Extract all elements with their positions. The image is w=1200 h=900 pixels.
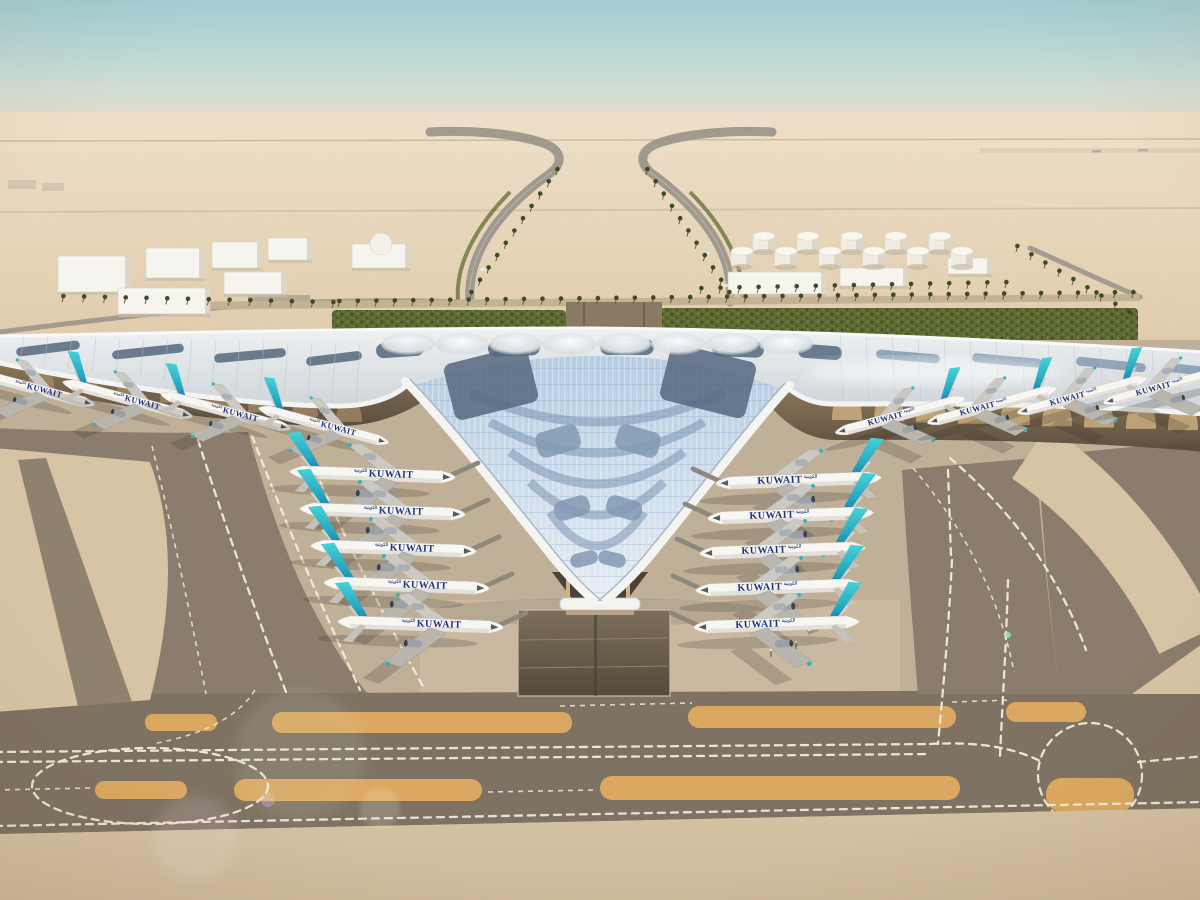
- kuwait-airport-terminal-rendering: KUWAITالكويتيةKUWAITالكويتيةKUWAITالكويت…: [0, 0, 1200, 900]
- aerial-rendering-canvas: KUWAITالكويتيةKUWAITالكويتيةKUWAITالكويت…: [0, 0, 1200, 900]
- vignette: [0, 0, 1200, 900]
